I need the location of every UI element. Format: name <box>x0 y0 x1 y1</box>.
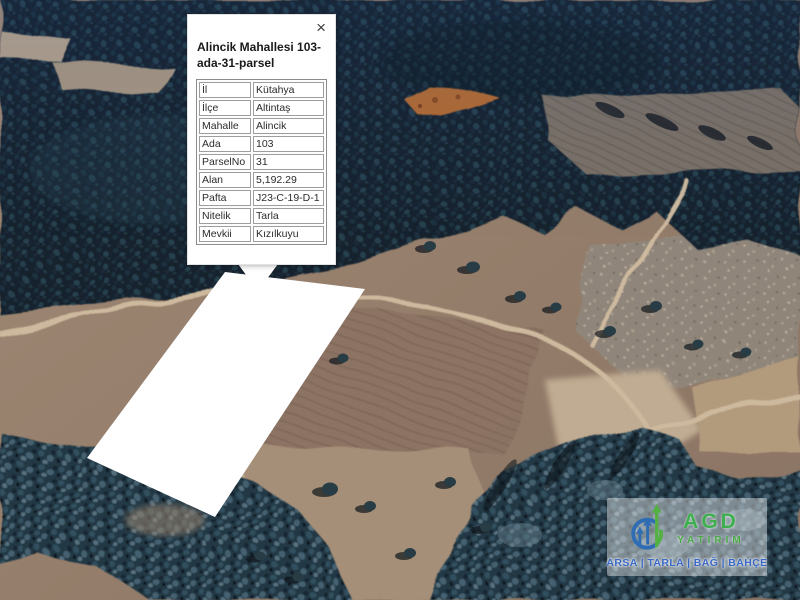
field-label-cell: İl <box>199 82 251 98</box>
field-label-cell: ParselNo <box>199 154 251 170</box>
table-row: Mahalle Alincik <box>199 118 324 134</box>
field-label-cell: Mevkii <box>199 226 251 242</box>
table-row: Pafta J23-C-19-D-1 <box>199 190 324 206</box>
field-value-cell: Kütahya <box>253 82 324 98</box>
field-label-cell: Alan <box>199 172 251 188</box>
table-row: Nitelik Tarla <box>199 208 324 224</box>
table-row: Alan 5,192.29 <box>199 172 324 188</box>
popup-title: Alincik Mahallesi 103-ada-31-parsel <box>197 40 326 71</box>
field-label-cell: Ada <box>199 136 251 152</box>
parcel-info-popup: × Alincik Mahallesi 103-ada-31-parsel İl… <box>187 14 336 265</box>
parcel-attributes-table: İl Kütahya İlçe Altintaş Mahalle Alincik… <box>196 79 327 245</box>
table-row: İl Kütahya <box>199 82 324 98</box>
agd-watermark: AGD YATIRIM ARSA | TARLA | BAĞ | BAHÇE <box>607 498 767 576</box>
popup-tail <box>238 264 278 291</box>
table-row: ParselNo 31 <box>199 154 324 170</box>
field-value-cell: Kızılkuyu <box>253 226 324 242</box>
field-value-cell: J23-C-19-D-1 <box>253 190 324 206</box>
brand-tagline: ARSA | TARLA | BAĞ | BAHÇE <box>606 557 767 569</box>
field-value-cell: Tarla <box>253 208 324 224</box>
field-value-cell: 103 <box>253 136 324 152</box>
table-row: Ada 103 <box>199 136 324 152</box>
field-label-cell: Nitelik <box>199 208 251 224</box>
field-label-cell: Pafta <box>199 190 251 206</box>
brand-name: AGD <box>683 511 739 533</box>
table-row: İlçe Altintaş <box>199 100 324 116</box>
field-value-cell: 5,192.29 <box>253 172 324 188</box>
close-icon[interactable]: × <box>316 19 326 36</box>
field-value-cell: Altintaş <box>253 100 324 116</box>
brand-subtitle: YATIRIM <box>677 535 744 546</box>
field-label-cell: Mahalle <box>199 118 251 134</box>
agd-logo-icon <box>629 502 671 554</box>
table-row: Mevkii Kızılkuyu <box>199 226 324 242</box>
field-label-cell: İlçe <box>199 100 251 116</box>
field-value-cell: Alincik <box>253 118 324 134</box>
map-view[interactable]: × Alincik Mahallesi 103-ada-31-parsel İl… <box>0 0 800 600</box>
field-value-cell: 31 <box>253 154 324 170</box>
